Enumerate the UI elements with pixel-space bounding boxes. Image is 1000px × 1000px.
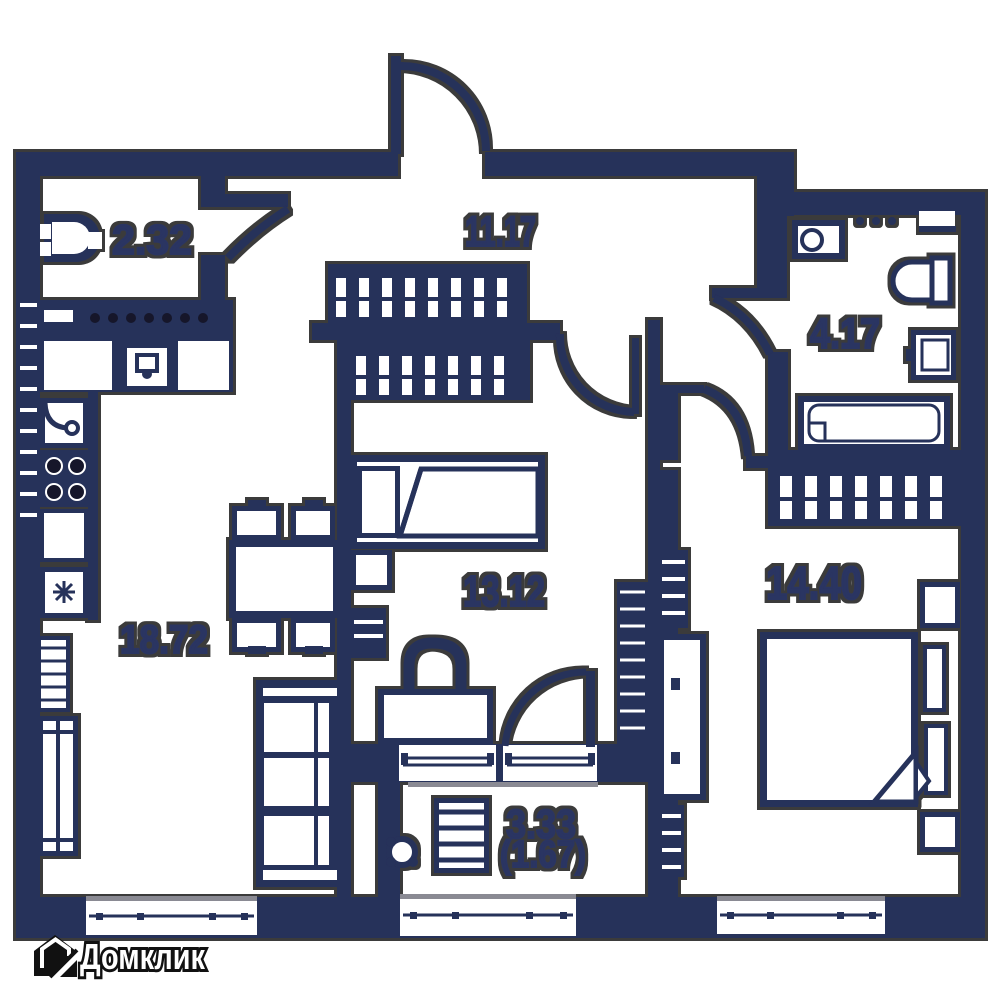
svg-text:11.17: 11.17	[465, 208, 536, 256]
svg-text:4.17: 4.17	[810, 310, 880, 358]
svg-text:14.40: 14.40	[766, 557, 862, 609]
svg-text:18.72: 18.72	[120, 618, 208, 662]
svg-text:(1.67): (1.67)	[500, 834, 586, 876]
svg-text:Домклик: Домклик	[80, 936, 206, 977]
svg-text:2.32: 2.32	[112, 216, 192, 263]
svg-text:13.12: 13.12	[463, 567, 545, 616]
